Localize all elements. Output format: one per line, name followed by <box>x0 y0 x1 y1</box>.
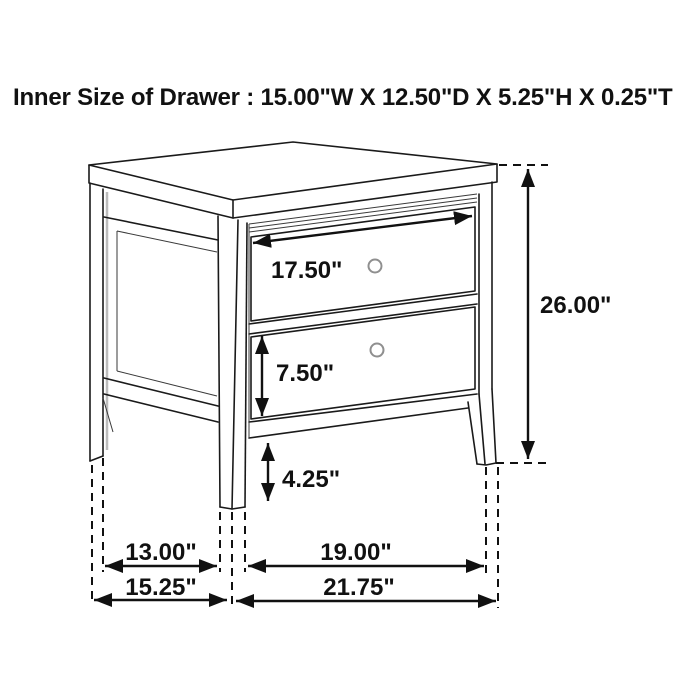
dim-label-front-inner-span: 19.00" <box>320 539 391 566</box>
dim-label-front-overall-width: 21.75" <box>323 574 394 601</box>
dim-front-inner-span: 19.00" <box>248 539 484 566</box>
dim-bottom-drawer-height: 7.50" <box>262 336 334 416</box>
dim-side-inner-span: 13.00" <box>105 539 217 566</box>
dim-label-overall-height: 26.00" <box>540 292 611 319</box>
back-left-leg <box>90 183 113 461</box>
nightstand-drawing <box>89 142 497 509</box>
dim-label-side-inner-span: 13.00" <box>125 539 196 566</box>
left-side-panel <box>104 217 218 422</box>
dim-drawer-face-width: 17.50" <box>253 216 472 284</box>
nightstand-dimension-drawing: 17.50" 26.00" 7.50" 4.25" <box>0 0 700 700</box>
front-right-leg <box>468 389 496 465</box>
top-drawer-knob <box>369 260 382 273</box>
right-corner-post <box>479 182 492 394</box>
dim-side-overall-depth: 15.25" <box>94 574 227 601</box>
dim-overall-height: 26.00" <box>496 165 611 463</box>
dim-label-side-overall-depth: 15.25" <box>125 574 196 601</box>
diagram-page: Inner Size of Drawer : 15.00"W X 12.50"D… <box>0 0 700 700</box>
front-center-leg <box>218 216 247 509</box>
dim-label-bottom-drawer-height: 7.50" <box>276 360 334 387</box>
dim-front-overall-width: 21.75" <box>236 574 496 601</box>
drawer-divider <box>249 294 477 334</box>
top-panel <box>89 142 497 218</box>
dim-label-leg-height: 4.25" <box>282 466 340 493</box>
bottom-drawer-knob <box>371 344 384 357</box>
dim-leg-height: 4.25" <box>268 443 340 501</box>
dim-label-drawer-width: 17.50" <box>271 257 342 284</box>
